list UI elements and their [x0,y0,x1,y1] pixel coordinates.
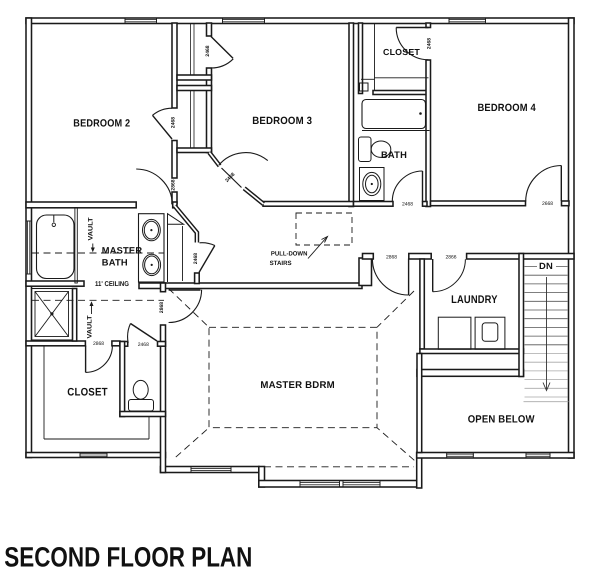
svg-text:2468: 2468 [224,172,236,184]
svg-text:BATH: BATH [102,258,128,268]
svg-text:DN: DN [539,261,553,271]
svg-text:2468: 2468 [426,38,432,49]
svg-text:2468: 2468 [193,253,199,264]
svg-text:LAUNDRY: LAUNDRY [451,294,498,306]
svg-text:OPEN BELOW: OPEN BELOW [468,413,535,425]
svg-text:BATH: BATH [381,150,407,161]
svg-text:VAULT: VAULT [87,315,94,338]
svg-text:MASTER: MASTER [102,246,143,256]
svg-text:MASTER BDRM: MASTER BDRM [260,380,335,391]
svg-text:STAIRS: STAIRS [270,260,292,267]
svg-text:BEDROOM 3: BEDROOM 3 [252,115,312,127]
svg-text:2868: 2868 [171,179,177,190]
svg-text:2468: 2468 [402,202,413,208]
svg-text:BEDROOM 4: BEDROOM 4 [477,102,536,114]
svg-text:BEDROOM 2: BEDROOM 2 [73,117,130,129]
svg-text:2866: 2866 [445,254,456,260]
svg-text:2868: 2868 [386,254,397,260]
svg-text:2868: 2868 [93,341,104,347]
svg-text:PULL-DOWN: PULL-DOWN [271,251,308,258]
svg-text:2668: 2668 [542,201,553,207]
svg-text:VAULT: VAULT [88,217,95,240]
svg-text:2468: 2468 [205,45,211,56]
svg-text:SECOND FLOOR PLAN: SECOND FLOOR PLAN [4,542,252,573]
svg-text:CLOSET: CLOSET [67,387,107,399]
svg-text:11' CEILING: 11' CEILING [95,281,129,288]
svg-text:2868: 2868 [159,302,165,313]
svg-text:CLOSET: CLOSET [383,47,420,57]
svg-text:2468: 2468 [171,117,177,128]
svg-text:2468: 2468 [138,342,149,348]
